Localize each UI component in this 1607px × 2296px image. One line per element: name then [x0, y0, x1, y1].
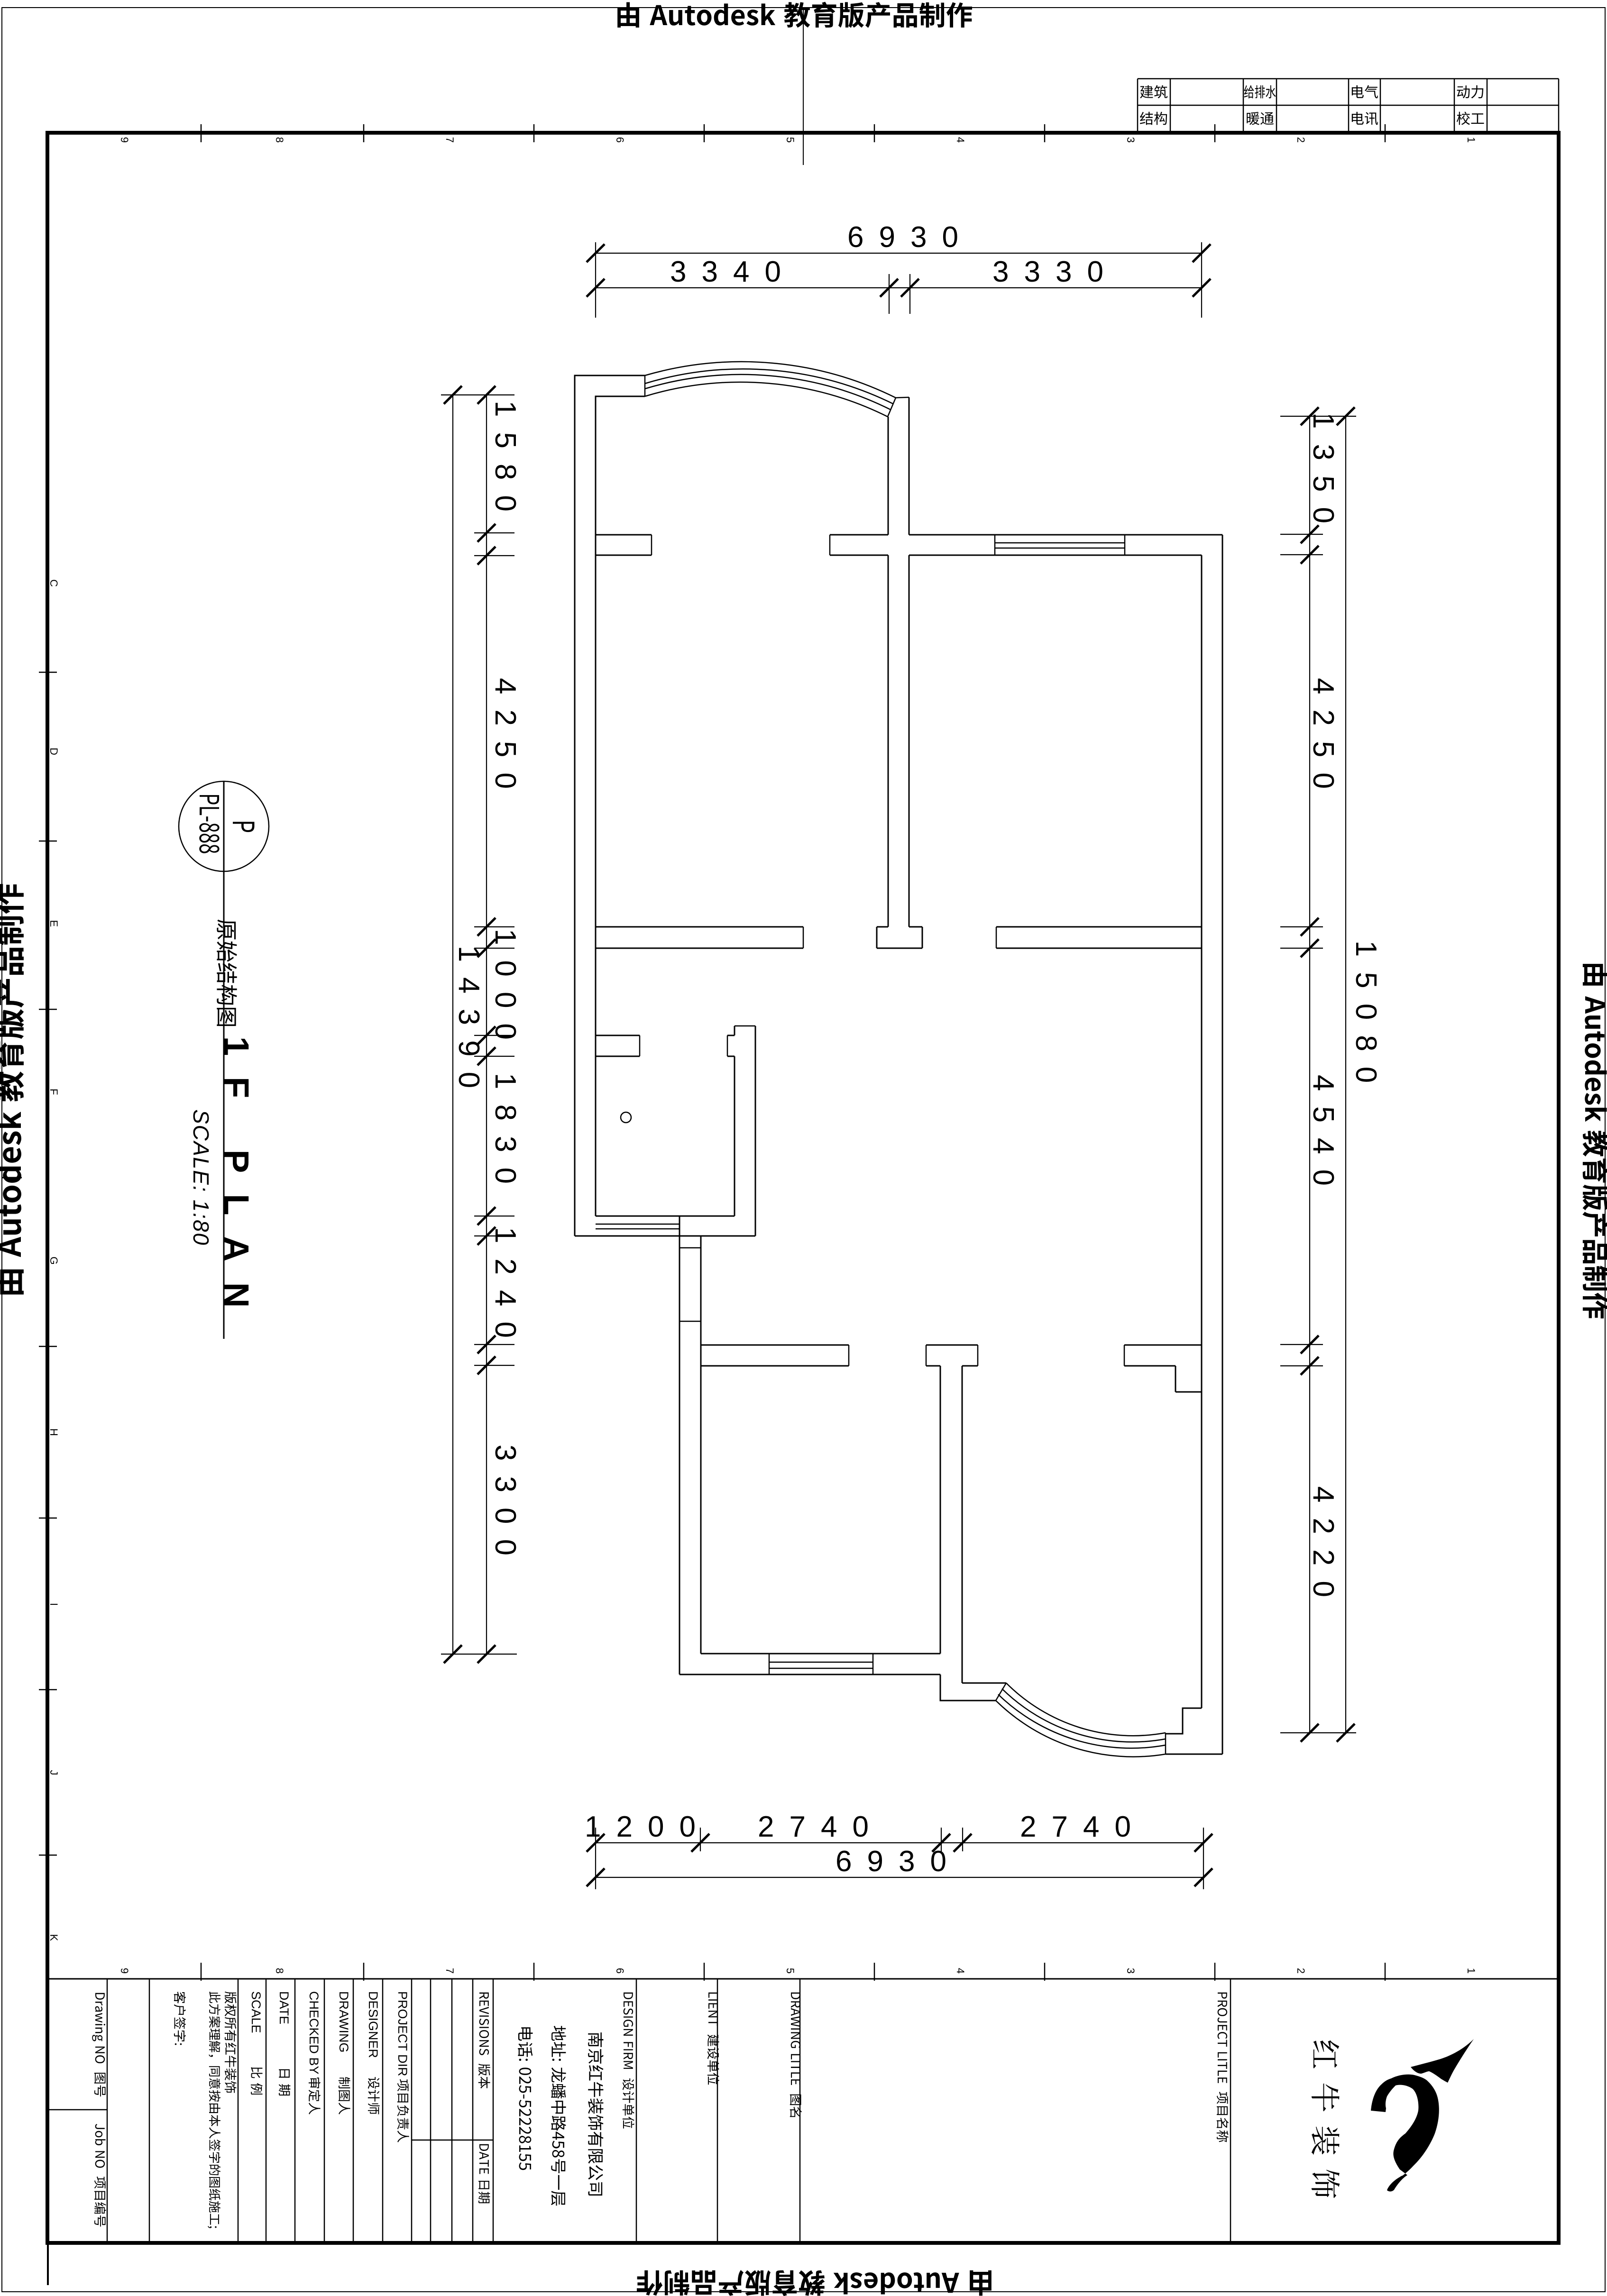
svg-text:3: 3: [1125, 1968, 1137, 1974]
svg-text:4250: 4250: [1307, 678, 1340, 804]
svg-text:3: 3: [1125, 137, 1137, 143]
svg-text:6930: 6930: [847, 221, 973, 254]
svg-text:H: H: [48, 1428, 60, 1436]
svg-text:DATE: DATE: [277, 1991, 291, 2024]
svg-text:4250: 4250: [489, 678, 522, 804]
svg-text:J: J: [48, 1770, 60, 1775]
svg-text:F: F: [48, 1089, 60, 1095]
svg-text:I: I: [48, 1603, 60, 1606]
svg-text:15080: 15080: [1350, 941, 1382, 1098]
svg-text:3300: 3300: [489, 1445, 522, 1571]
svg-text:1F PLAN: 1F PLAN: [217, 1036, 256, 1328]
svg-text:2740: 2740: [758, 1811, 884, 1843]
svg-text:2: 2: [1295, 1968, 1307, 1974]
svg-text:4: 4: [955, 137, 966, 143]
svg-text:9: 9: [119, 137, 130, 143]
svg-text:SCALE: 1:80: SCALE: 1:80: [189, 1109, 213, 1246]
svg-text:1: 1: [1465, 1968, 1477, 1974]
svg-text:SCALE: SCALE: [249, 1991, 263, 2033]
svg-text:2: 2: [1295, 137, 1307, 143]
svg-text:G: G: [48, 1256, 60, 1264]
svg-text:9: 9: [119, 1968, 130, 1974]
svg-text:5: 5: [784, 1968, 796, 1974]
svg-text:C: C: [48, 579, 60, 587]
svg-text:5: 5: [784, 137, 796, 143]
svg-text:7: 7: [444, 137, 456, 143]
svg-text:1830: 1830: [489, 1073, 522, 1199]
svg-text:DESIGNER: DESIGNER: [366, 1991, 380, 2058]
svg-text:CHECKED BY: CHECKED BY: [307, 1991, 321, 2075]
svg-text:4: 4: [955, 1968, 966, 1974]
svg-text:4540: 4540: [1307, 1075, 1340, 1201]
svg-text:PROJECT DIR: PROJECT DIR: [395, 1991, 410, 2076]
svg-text:1000: 1000: [489, 929, 522, 1055]
svg-text:1: 1: [1465, 137, 1477, 143]
svg-text:14390: 14390: [452, 946, 485, 1103]
svg-text:8: 8: [274, 1968, 285, 1974]
svg-text:1580: 1580: [489, 401, 522, 527]
svg-text:2740: 2740: [1020, 1811, 1146, 1843]
svg-text:1240: 1240: [489, 1227, 522, 1353]
svg-text:3340: 3340: [670, 256, 796, 288]
svg-text:8: 8: [274, 137, 285, 143]
svg-text:6: 6: [614, 1968, 626, 1974]
svg-text:K: K: [48, 1934, 60, 1941]
svg-text:D: D: [48, 748, 60, 755]
svg-text:6: 6: [614, 137, 626, 143]
svg-text:3330: 3330: [992, 256, 1119, 288]
svg-text:4220: 4220: [1307, 1486, 1340, 1612]
svg-text:1200: 1200: [585, 1811, 711, 1843]
svg-text:7: 7: [444, 1968, 456, 1974]
svg-text:1350: 1350: [1307, 412, 1340, 539]
svg-text:E: E: [48, 920, 60, 927]
svg-text:6930: 6930: [836, 1845, 962, 1878]
svg-text:DRAWING: DRAWING: [337, 1991, 351, 2053]
